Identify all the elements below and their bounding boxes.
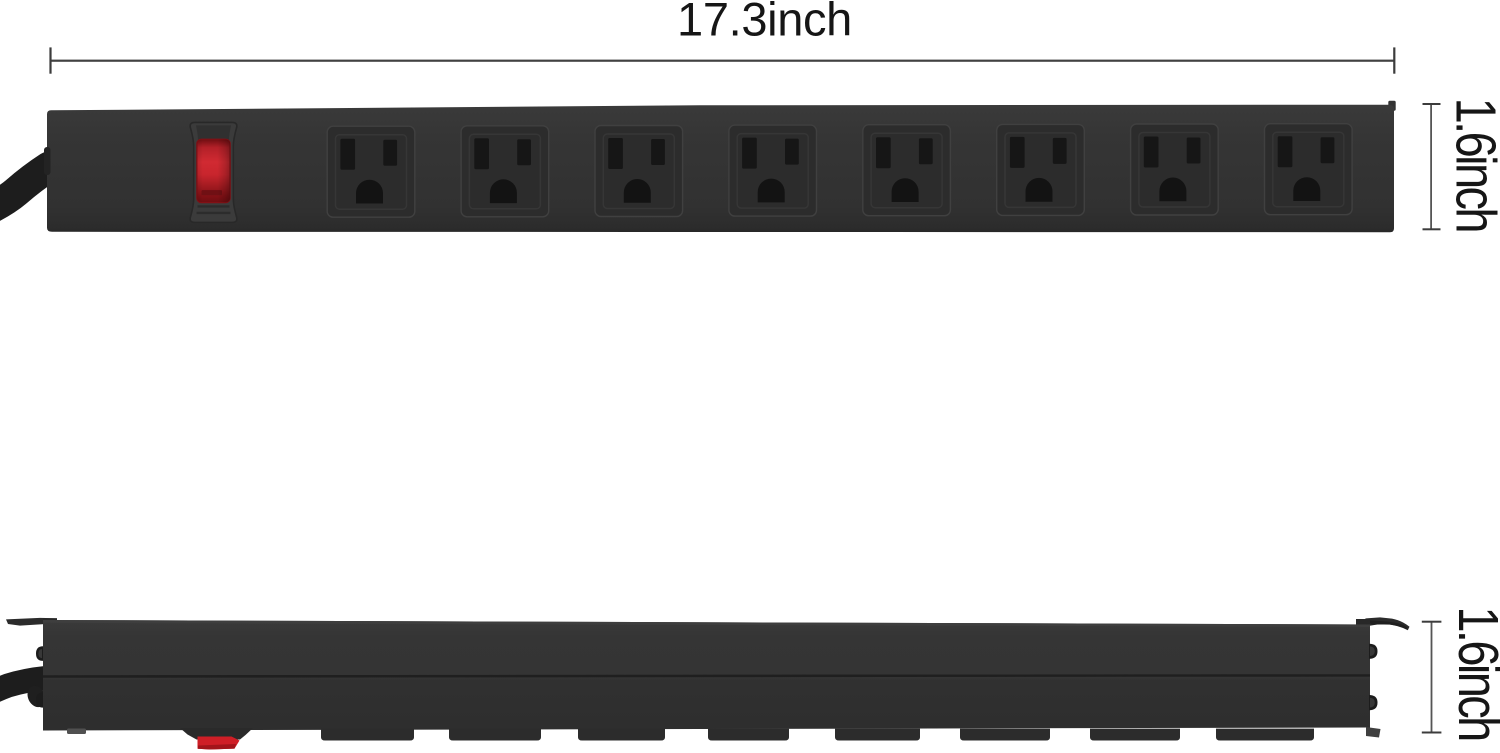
svg-text:17.3inch: 17.3inch — [677, 0, 852, 46]
svg-text:1.6inch: 1.6inch — [1446, 606, 1500, 739]
svg-text:1.6inch: 1.6inch — [1443, 98, 1500, 231]
